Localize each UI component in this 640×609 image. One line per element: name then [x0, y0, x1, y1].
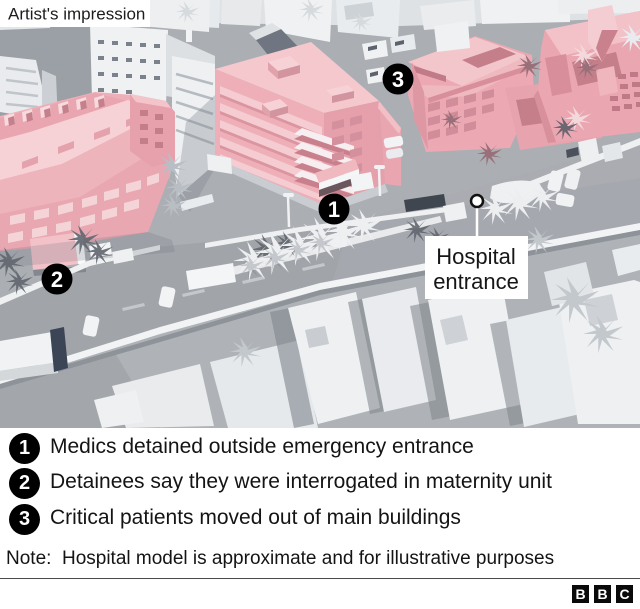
svg-text:2: 2 — [51, 267, 63, 292]
svg-text:3: 3 — [392, 67, 404, 92]
svg-text:entrance: entrance — [433, 269, 519, 294]
svg-text:Artist's impression: Artist's impression — [8, 5, 145, 24]
svg-text:1: 1 — [328, 197, 340, 222]
svg-text:Hospital: Hospital — [436, 244, 515, 269]
